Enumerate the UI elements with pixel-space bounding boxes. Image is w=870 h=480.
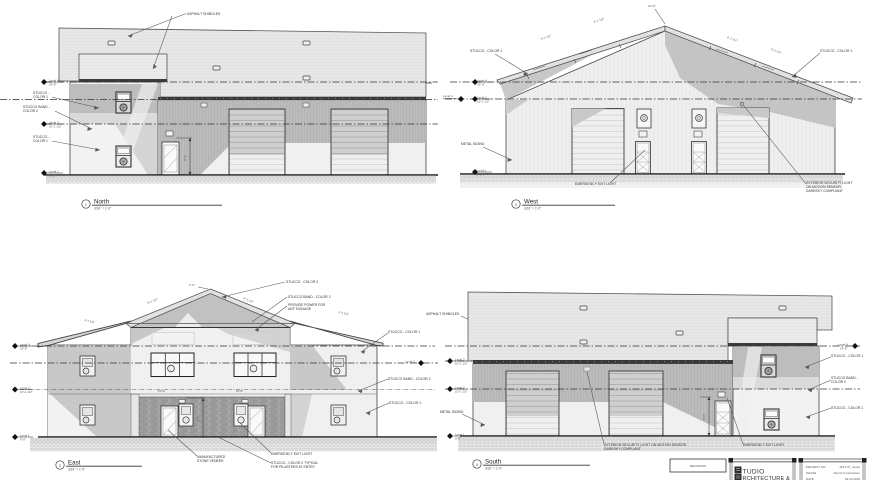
svg-text:REVISIONS: REVISIONS (690, 464, 706, 468)
svg-text:10'-1 1/2": 10'-1 1/2" (455, 362, 468, 366)
svg-text:0'-0": 0'-0" (477, 173, 483, 177)
svg-text:4: 4 (476, 463, 478, 467)
svg-text:1: 1 (85, 203, 87, 207)
svg-text:East: East (68, 460, 81, 467)
svg-text:0'-0": 0'-0" (455, 437, 461, 441)
svg-text:3/16" = 1'-0": 3/16" = 1'-0" (94, 207, 111, 211)
svg-text:STUCCO - COLOR 2: STUCCO - COLOR 2 (286, 280, 318, 284)
svg-text:6'-1 1/2": 6'-1 1/2" (540, 34, 552, 41)
svg-text:COLOR 2: COLOR 2 (831, 380, 846, 384)
svg-text:PROJECT NO.: PROJECT NO. (806, 465, 826, 469)
svg-text:19'-9": 19'-9" (20, 347, 28, 351)
svg-text:10'-1 1/2": 10'-1 1/2" (49, 125, 62, 129)
svg-text:9'-0": 9'-0" (183, 155, 187, 161)
svg-text:EMERGENCY EXIT LIGHT: EMERGENCY EXIT LIGHT (271, 452, 312, 456)
svg-text:ASPHALT SHINGLES: ASPHALT SHINGLES (426, 312, 460, 316)
svg-text:PHASE: PHASE (806, 471, 816, 475)
svg-text:South: South (485, 459, 502, 466)
svg-text:DARKSKY COMPLIANT: DARKSKY COMPLIANT (604, 447, 641, 451)
svg-text:19'-9": 19'-9" (840, 347, 848, 351)
svg-text:Level 4: Level 4 (443, 94, 453, 98)
svg-text:3/16" = 1'-0": 3/16" = 1'-0" (485, 467, 502, 471)
svg-text:EMERGENCY EXIT LIGHT: EMERGENCY EXIT LIGHT (575, 182, 616, 186)
svg-text:COLOR 2: COLOR 2 (23, 109, 38, 113)
svg-text:STUCCO - COLOR 1: STUCCO - COLOR 1 (470, 49, 502, 53)
svg-text:9'-0": 9'-0" (702, 414, 706, 420)
svg-text:METAL SIDING: METAL SIDING (461, 142, 485, 146)
svg-text:FOR PILASTERS AT ENTRY: FOR PILASTERS AT ENTRY (271, 465, 316, 469)
svg-text:9'-1 1/2": 9'-1 1/2" (147, 297, 159, 305)
svg-text:6'-1 1/2": 6'-1 1/2" (593, 17, 605, 24)
svg-text:COLOR 1: COLOR 1 (33, 95, 48, 99)
svg-text:1'-9": 1'-9" (189, 283, 195, 287)
svg-text:0'-0": 0'-0" (20, 438, 26, 442)
svg-text:19'-9": 19'-9" (49, 83, 57, 87)
svg-text:ASPHALT SHINGLES: ASPHALT SHINGLES (187, 12, 221, 16)
svg-text:STUCCO - COLOR 1: STUCCO - COLOR 1 (831, 354, 863, 358)
svg-text:STUCCO - COLOR 1: STUCCO - COLOR 1 (389, 401, 421, 405)
svg-text:4'-1 1/2": 4'-1 1/2" (338, 310, 350, 316)
svg-text:9'-0": 9'-0" (197, 416, 201, 422)
svg-text:Level 3: Level 3 (405, 359, 415, 363)
svg-text:STUCCO - COLOR 1: STUCCO - COLOR 1 (831, 406, 863, 410)
svg-text:3: 3 (59, 464, 61, 468)
svg-text:DARKSKY COMPLIANT: DARKSKY COMPLIANT (806, 189, 843, 193)
svg-text:3/16" = 1'-0": 3/16" = 1'-0" (68, 468, 85, 472)
svg-text:Permit Construction: Permit Construction (834, 471, 861, 475)
svg-text:10'-1 1/2": 10'-1 1/2" (455, 390, 468, 394)
svg-text:STUCCO BAND - COLOR 2: STUCCO BAND - COLOR 2 (288, 295, 331, 299)
svg-text:6'-1 1/2": 6'-1 1/2" (727, 35, 739, 43)
svg-text:2017.07_Jones: 2017.07_Jones (839, 465, 860, 469)
svg-text:6'-1 1/2": 6'-1 1/2" (771, 47, 783, 55)
svg-text:4'-1 1/2": 4'-1 1/2" (84, 318, 96, 324)
svg-text:ANT SIGNAGE: ANT SIGNAGE (288, 307, 312, 311)
svg-text:STUCCO - COLOR 1: STUCCO - COLOR 1 (820, 49, 852, 53)
svg-text:EMERGENCY EXIT LIGHT: EMERGENCY EXIT LIGHT (743, 443, 784, 447)
svg-text:COLOR 1: COLOR 1 (33, 139, 48, 143)
svg-text:North: North (94, 199, 110, 206)
svg-text:West: West (524, 199, 538, 206)
svg-text:TUDIO: TUDIO (743, 469, 765, 476)
svg-text:2: 2 (515, 203, 517, 207)
svg-text:STONE VENEER: STONE VENEER (197, 459, 224, 463)
svg-text:10'-1 1/2": 10'-1 1/2" (20, 390, 33, 394)
svg-text:19'-9": 19'-9" (477, 83, 485, 87)
svg-text:10'-1 1/2": 10'-1 1/2" (477, 100, 490, 104)
svg-text:STUCCO - COLOR 1: STUCCO - COLOR 1 (388, 330, 420, 334)
svg-text:3/16" = 1'-0": 3/16" = 1'-0" (524, 207, 541, 211)
svg-text:RCHITECTURE &: RCHITECTURE & (743, 476, 791, 480)
svg-text:10'-9": 10'-9" (648, 4, 656, 8)
svg-text:STUCCO BAND - COLOR 2: STUCCO BAND - COLOR 2 (388, 377, 431, 381)
svg-text:METAL SIDING: METAL SIDING (440, 410, 464, 414)
svg-text:0'-0": 0'-0" (49, 174, 55, 178)
